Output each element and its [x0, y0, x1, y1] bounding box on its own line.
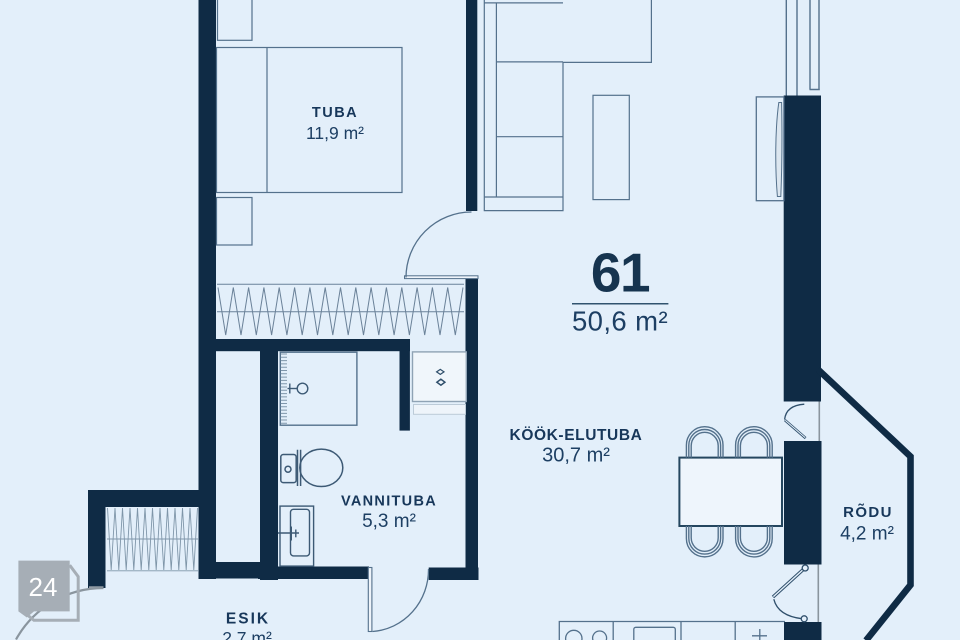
- svg-text:24: 24: [29, 572, 58, 602]
- svg-text:30,7 m²: 30,7 m²: [542, 445, 610, 467]
- svg-text:5,3 m²: 5,3 m²: [362, 511, 416, 532]
- svg-text:4,2 m²: 4,2 m²: [840, 524, 894, 545]
- svg-text:2,7 m²: 2,7 m²: [222, 628, 272, 640]
- svg-text:61: 61: [591, 242, 650, 304]
- svg-text:RÕDU: RÕDU: [843, 503, 893, 521]
- svg-text:ESIK: ESIK: [226, 611, 270, 628]
- svg-text:TUBA: TUBA: [312, 105, 358, 121]
- svg-text:KÖÖK-ELUTUBA: KÖÖK-ELUTUBA: [510, 427, 643, 444]
- svg-text:50,6 m²: 50,6 m²: [572, 306, 668, 337]
- svg-text:11,9 m²: 11,9 m²: [306, 123, 364, 143]
- svg-text:VANNITUBA: VANNITUBA: [341, 494, 437, 510]
